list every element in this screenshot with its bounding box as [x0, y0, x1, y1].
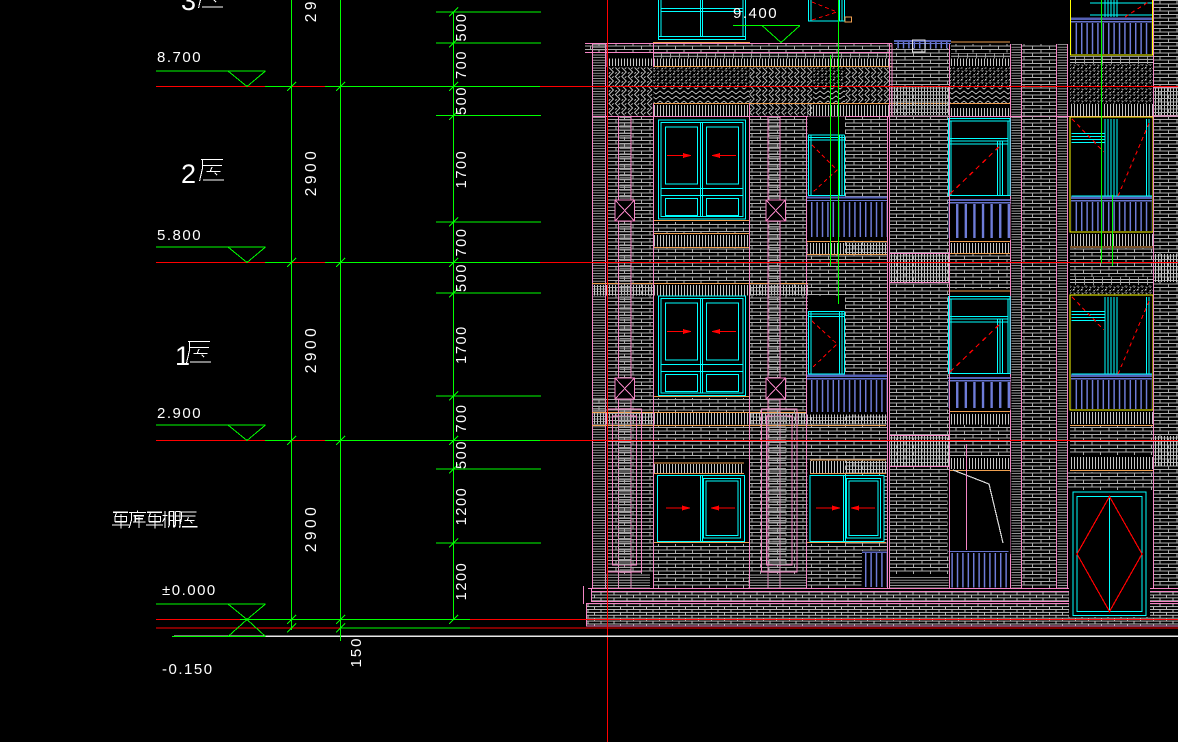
svg-text:8.700: 8.700: [157, 49, 202, 66]
svg-text:500: 500: [454, 263, 470, 292]
svg-text:700: 700: [454, 228, 470, 257]
svg-text:2900: 2900: [303, 0, 320, 22]
svg-text:2: 2: [181, 159, 196, 189]
svg-text:700: 700: [454, 50, 470, 79]
svg-text:±0.000: ±0.000: [162, 582, 217, 599]
svg-text:1200: 1200: [454, 487, 470, 526]
svg-text:500: 500: [454, 86, 470, 115]
svg-text:2900: 2900: [303, 148, 320, 196]
svg-text:2900: 2900: [303, 504, 320, 552]
svg-text:150: 150: [348, 636, 365, 667]
svg-text:500: 500: [454, 440, 470, 469]
svg-text:2900: 2900: [303, 325, 320, 373]
svg-text:5.800: 5.800: [157, 227, 202, 244]
svg-text:1200: 1200: [454, 562, 470, 601]
svg-text:-0.150: -0.150: [162, 661, 214, 678]
svg-text:500: 500: [454, 13, 470, 42]
svg-text:1700: 1700: [454, 150, 470, 189]
svg-text:3: 3: [181, 0, 196, 16]
svg-text:9.400: 9.400: [733, 5, 778, 22]
svg-text:2.900: 2.900: [157, 405, 202, 422]
svg-text:1700: 1700: [454, 325, 470, 364]
svg-text:700: 700: [454, 404, 470, 433]
